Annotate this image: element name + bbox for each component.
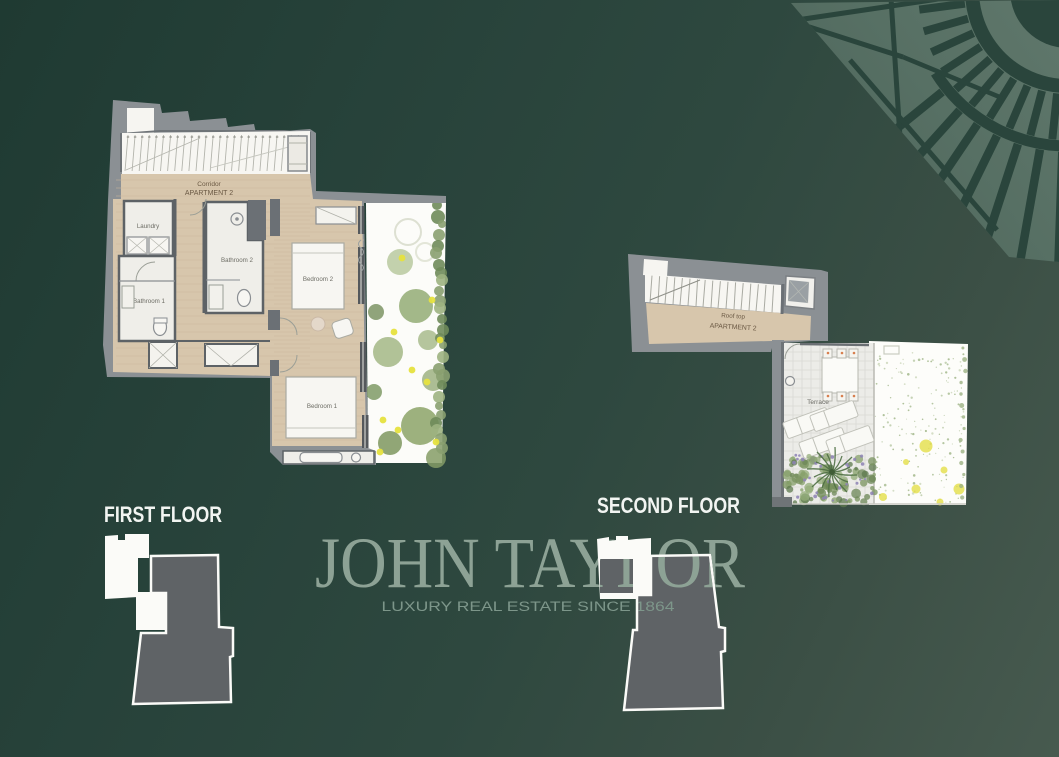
svg-text:SECOND FLOOR: SECOND FLOOR [597,493,740,518]
svg-text:Roof top: Roof top [721,312,746,320]
svg-text:FIRST FLOOR: FIRST FLOOR [104,502,222,527]
svg-text:Bathroom 1: Bathroom 1 [133,298,166,305]
svg-text:Laundry: Laundry [137,223,160,230]
svg-text:LUXURY REAL ESTATE SINCE 1864: LUXURY REAL ESTATE SINCE 1864 [382,599,676,614]
svg-text:Corridor: Corridor [197,181,221,188]
svg-text:Terrace: Terrace [807,399,829,406]
svg-text:Bathroom 2: Bathroom 2 [221,257,254,264]
svg-text:JOHN TAYLOR: JOHN TAYLOR [315,523,745,603]
svg-text:APARTMENT 2: APARTMENT 2 [185,190,233,197]
svg-text:Bedroom 2: Bedroom 2 [303,276,334,283]
svg-text:Bedroom 1: Bedroom 1 [307,403,338,410]
